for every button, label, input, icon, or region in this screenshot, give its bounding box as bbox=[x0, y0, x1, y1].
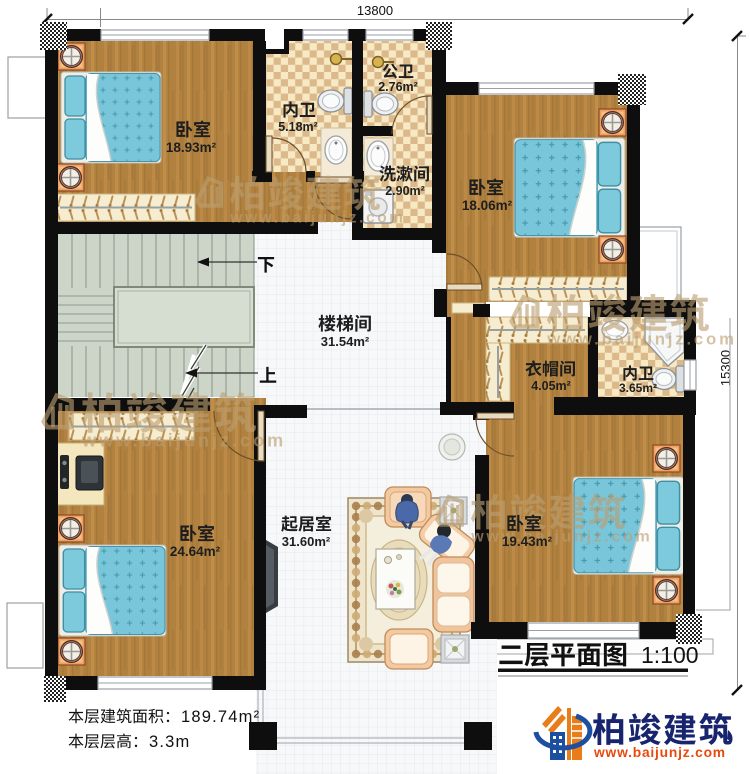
svg-text:5.18m²: 5.18m² bbox=[278, 120, 318, 134]
svg-text:4.05m²: 4.05m² bbox=[531, 379, 571, 393]
svg-text:31.60m²: 31.60m² bbox=[282, 534, 331, 549]
svg-text:19.43m²: 19.43m² bbox=[502, 534, 553, 549]
svg-text:189.74m²: 189.74m² bbox=[181, 708, 260, 726]
svg-text:1:100: 1:100 bbox=[641, 642, 699, 668]
svg-text:www.baijunjz.com: www.baijunjz.com bbox=[546, 329, 737, 348]
svg-text:2.76m²: 2.76m² bbox=[378, 80, 418, 94]
svg-text:24.64m²: 24.64m² bbox=[170, 544, 221, 559]
svg-text:www.baijunjz.com: www.baijunjz.com bbox=[470, 529, 652, 546]
svg-text:18.06m²: 18.06m² bbox=[462, 198, 513, 213]
svg-text:www.baijunjz.com: www.baijunjz.com bbox=[593, 745, 726, 760]
svg-text:www.baijunjz.com: www.baijunjz.com bbox=[229, 209, 405, 226]
svg-text:15300: 15300 bbox=[718, 350, 733, 386]
svg-text:18.93m²: 18.93m² bbox=[166, 140, 217, 155]
svg-text:3.65m²: 3.65m² bbox=[619, 381, 657, 395]
svg-text:31.54m²: 31.54m² bbox=[321, 334, 370, 349]
svg-text:13800: 13800 bbox=[357, 3, 393, 18]
svg-text:2.90m²: 2.90m² bbox=[385, 184, 425, 198]
svg-text:3.3m: 3.3m bbox=[149, 733, 190, 751]
svg-text:www.baijunjz.com: www.baijunjz.com bbox=[81, 431, 286, 451]
